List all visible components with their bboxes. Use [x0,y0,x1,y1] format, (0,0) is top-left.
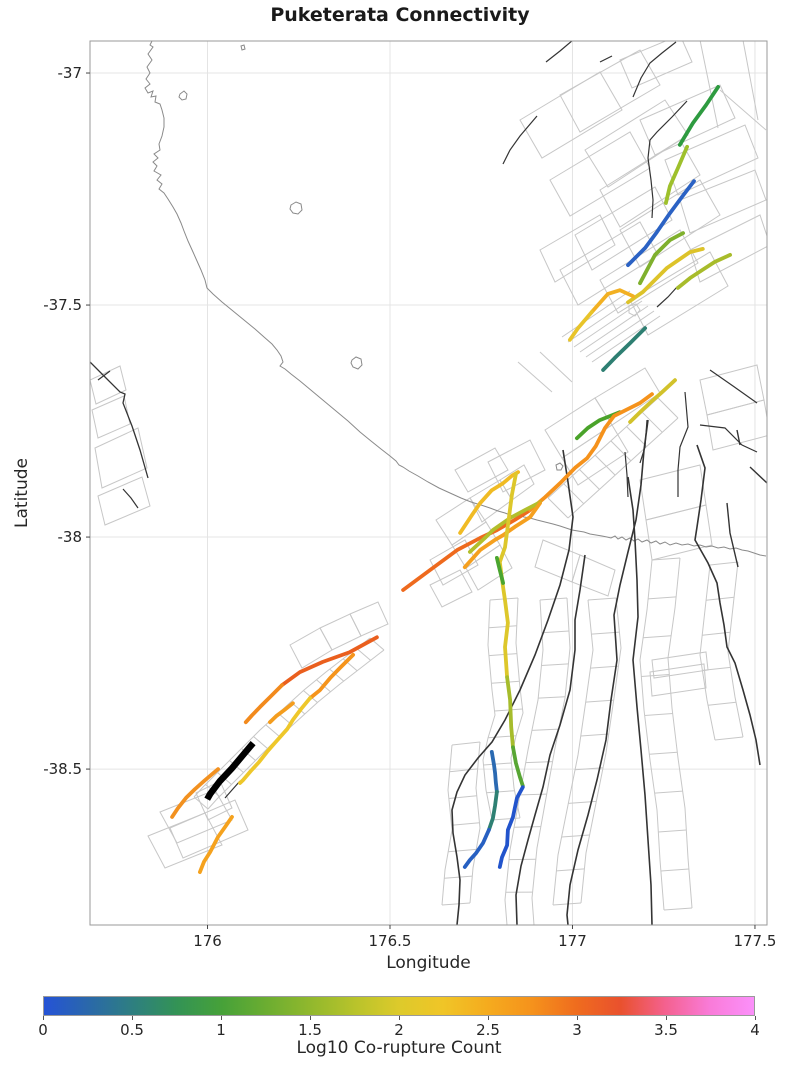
fault-patch-ladder [483,598,523,820]
y-tick-label: -37.5 [28,296,82,314]
x-axis-label: Longitude [90,953,767,973]
y-tick-label: -38 [28,528,82,546]
trace-sw-3 [270,703,293,722]
colorbar-tick-mark [488,1016,489,1020]
trace-sw-2a [310,655,353,698]
colorbar-tick-label: 3 [552,1021,602,1039]
axis-ticks [86,73,755,929]
trace-sw-2b [240,698,310,783]
island [179,91,187,100]
colorbar-tick-label: 4 [730,1021,780,1039]
fault-patch-ladder [442,742,480,905]
trace-ne-8 [603,328,645,370]
island [241,45,245,50]
colorbar-tick-mark [43,1016,44,1020]
trace-ne-7b [570,312,592,340]
colorbar-tick-label: 3.5 [641,1021,691,1039]
trace-sw-5 [200,817,232,872]
trace-ne-9 [630,380,675,422]
island [556,463,563,470]
trace-s-1c [513,747,523,786]
figure: Puketerata Connectivity Latitude Longitu… [0,0,800,1076]
trace-ne-6 [678,255,730,288]
fault-patch-ladder [640,558,692,910]
y-tick-label: -38.5 [28,760,82,778]
coastline [145,41,766,556]
map-content [90,35,770,925]
colorbar-tick-label: 1 [196,1021,246,1039]
colorbar-tick-label: 2.5 [463,1021,513,1039]
colorbar-tick-mark [577,1016,578,1020]
colorbar-tick-label: 0.5 [107,1021,157,1039]
colorbar-tick-label: 2 [374,1021,424,1039]
x-tick-label: 176 [173,932,243,950]
colorbar-tick-label: 0 [18,1021,68,1039]
trace-s-4a [492,752,497,792]
x-tick-label: 177.5 [720,932,790,950]
colorbar-label: Log10 Co-rupture Count [43,1038,755,1058]
colorbar-tick-mark [399,1016,400,1020]
island [351,357,362,369]
trace-main-b [530,394,652,510]
colorbar-tick-mark [755,1016,756,1020]
fault-patch-ladder [553,598,621,905]
x-tick-label: 177 [537,932,607,950]
map-plot-area [0,0,800,1076]
fault-patch-ladder [700,562,743,740]
colorbar-tick-mark [132,1016,133,1020]
island [290,202,302,214]
trace-ne-1 [680,87,718,145]
y-tick-label: -37 [28,64,82,82]
colorbar-tick-mark [310,1016,311,1020]
colorbar-tick-mark [666,1016,667,1020]
fault-patch-outlines [90,35,770,868]
colorbar [43,996,755,1016]
colorbar-tick-mark [221,1016,222,1020]
x-tick-label: 176.5 [355,932,425,950]
colorbar-tick-label: 1.5 [285,1021,335,1039]
